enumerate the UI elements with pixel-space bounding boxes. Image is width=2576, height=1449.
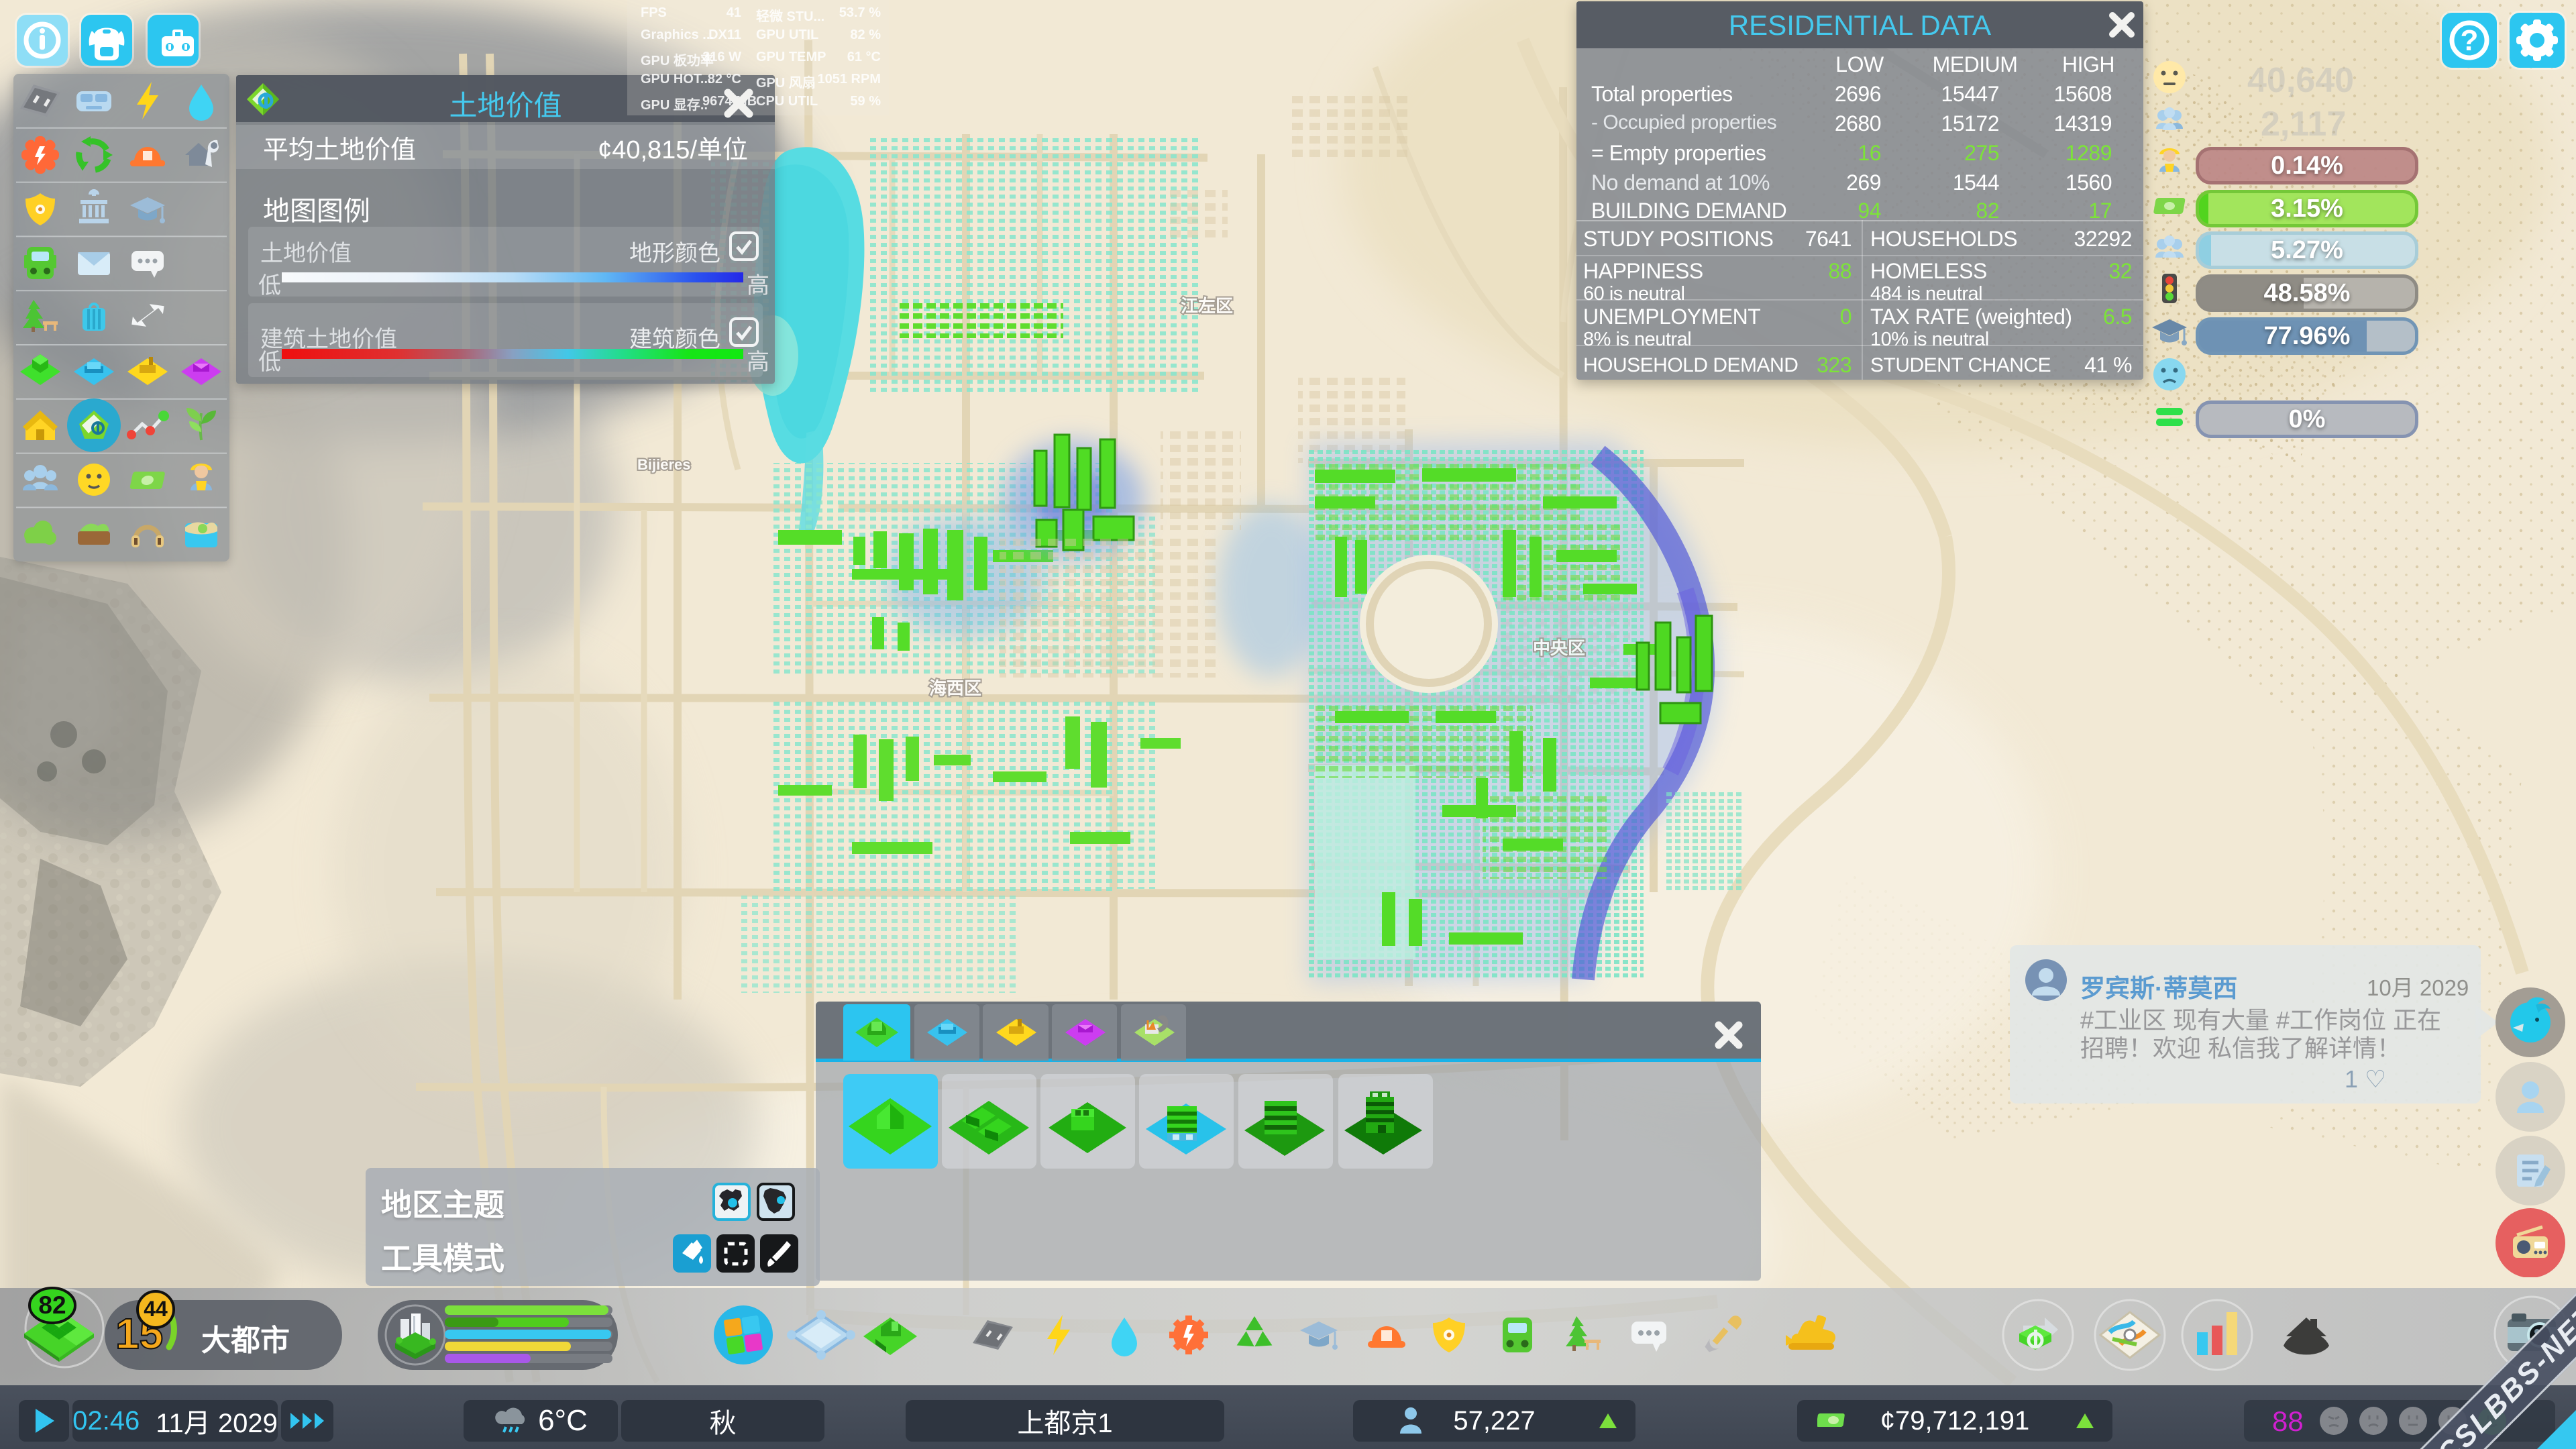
- svg-text:44: 44: [144, 1297, 168, 1321]
- svg-text:海西区: 海西区: [929, 678, 981, 698]
- svg-text:中央区: 中央区: [1533, 638, 1585, 658]
- svg-text:江左区: 江左区: [1181, 296, 1233, 316]
- svg-text:?: ?: [2461, 24, 2479, 57]
- svg-text:Bijieres: Bijieres: [637, 456, 691, 473]
- svg-text:82: 82: [38, 1291, 66, 1319]
